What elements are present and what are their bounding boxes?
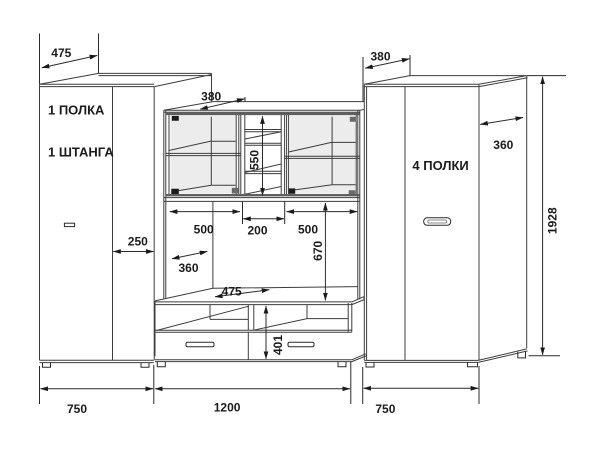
- svg-text:1200: 1200: [214, 401, 241, 415]
- svg-text:750: 750: [375, 402, 395, 416]
- svg-text:500: 500: [194, 223, 214, 237]
- svg-text:475: 475: [222, 284, 242, 298]
- svg-text:550: 550: [247, 150, 261, 170]
- svg-text:1928: 1928: [545, 207, 559, 234]
- svg-text:1 ПОЛКА: 1 ПОЛКА: [48, 103, 105, 118]
- svg-text:250: 250: [128, 235, 148, 249]
- svg-text:360: 360: [493, 138, 513, 152]
- svg-text:750: 750: [67, 402, 87, 416]
- svg-text:401: 401: [271, 335, 285, 355]
- svg-text:200: 200: [247, 224, 267, 238]
- svg-text:360: 360: [178, 261, 198, 275]
- svg-text:500: 500: [298, 223, 318, 237]
- svg-text:475: 475: [51, 46, 71, 60]
- svg-text:1 ШТАНГА: 1 ШТАНГА: [48, 145, 114, 160]
- svg-text:4 ПОЛКИ: 4 ПОЛКИ: [412, 158, 468, 173]
- svg-text:380: 380: [201, 90, 221, 104]
- svg-text:380: 380: [370, 50, 390, 64]
- svg-text:670: 670: [311, 240, 325, 260]
